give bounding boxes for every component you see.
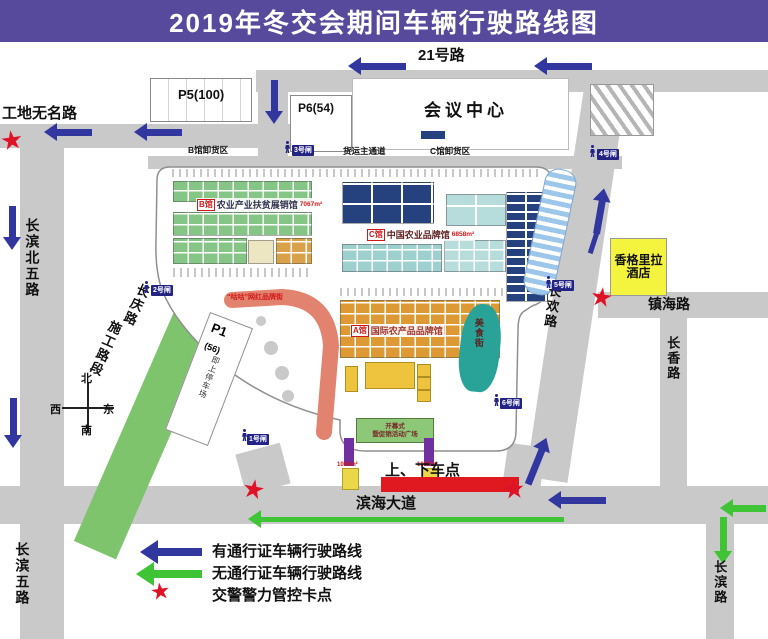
gate-2: 2号闸: [151, 285, 173, 296]
hallC-area: 6858m²: [452, 231, 474, 238]
hotel-shangrila: 香格里拉 酒店: [610, 238, 667, 296]
hatched-building: [590, 84, 654, 136]
hallC-navy-blocks: [342, 182, 434, 224]
parking-p1-capacity: (56): [203, 341, 222, 356]
changxiang-label: 长香路: [665, 336, 679, 381]
yellow-block-r1: [417, 364, 431, 377]
page-title: 2019年冬交会期间车辆行驶路线图: [169, 3, 599, 40]
checkpoint-star-zhenhai: [588, 283, 615, 312]
booth-strip-mid-left: [173, 268, 310, 277]
gongdi-label: 工地无名路: [2, 106, 77, 123]
dropoff-label: 上、下车点: [385, 463, 460, 480]
pedestrian-icon-gate6: [493, 394, 500, 406]
route-arrow-21-east: [534, 56, 592, 76]
hallC-teal-row2: [342, 244, 442, 272]
checkpoint-star-binhai-west: [240, 474, 267, 504]
road21-label: 21号路: [418, 48, 465, 65]
gate-5: 5号闸: [552, 280, 574, 291]
compass: 北 西 东 南: [56, 368, 118, 434]
route-arrow-binhai-blue: [548, 490, 606, 510]
hallA-label: A馆 国际农产品品牌馆: [350, 324, 444, 337]
temp-yellow-left: [342, 468, 359, 490]
route-arrow-green-east: [720, 498, 766, 518]
opening-line2: 暨促销活动广场: [372, 431, 418, 439]
yellow-block-left: [345, 366, 358, 392]
conference-center-label: 会议中心: [424, 102, 508, 121]
legend-police-label: 交警警力管控卡点: [212, 588, 332, 605]
legend-pass-label: 有通行证车辆行驶路线: [212, 544, 362, 561]
gate-6: 6号闸: [500, 398, 522, 409]
hallB-tan-block: [276, 238, 312, 264]
hallB-name: 农业产业扶贫展销馆: [217, 198, 298, 211]
title-bar: 2019年冬交会期间车辆行驶路线图: [0, 0, 768, 42]
changbin-n5-label: 长滨北五路: [24, 218, 39, 298]
pedestrian-icon-gate3: [284, 141, 291, 153]
pedestrian-icon-gate5: [545, 276, 552, 288]
booth-strip-top: [172, 169, 538, 177]
hallB-blocks-row3: [173, 238, 247, 264]
hallA-tag: A馆: [351, 325, 369, 337]
parking-p1-label: P1: [209, 320, 229, 340]
hallC-label: C馆 中国农业品牌馆 6858m²: [366, 228, 475, 241]
changbin-label: 长滨路: [712, 560, 726, 605]
conference-navy-chip: [421, 131, 445, 139]
temp-area-left: 1000m²: [337, 462, 358, 468]
hallC-tag: C馆: [367, 229, 385, 241]
compass-east: 东: [103, 401, 114, 417]
route-arrow-cbn5-top: [2, 206, 22, 250]
yellow-block-r3: [417, 390, 431, 402]
route-arrow-cbn5-bottom: [3, 398, 23, 448]
hallB-label: B馆 农业产业扶贫展销馆 7067m²: [196, 198, 323, 211]
zhenhai-label: 镇海路: [648, 297, 690, 312]
hallC-teal-large: [446, 194, 506, 226]
compass-west: 西: [50, 401, 61, 417]
legend-blue-arrow: [140, 540, 202, 564]
parking-p1-note: 即上停车场: [196, 354, 222, 400]
route-map: 2019年冬交会期间车辆行驶路线图 P5(100) P6(54) 会议中心 香格…: [0, 0, 768, 639]
compass-north: 北: [81, 370, 92, 386]
c-unload-label: C馆卸货区: [430, 147, 470, 156]
hotel-name-line2: 酒店: [626, 267, 650, 280]
pedestrian-icon-gate4: [589, 145, 596, 157]
parking-p6-label: P6(54): [298, 102, 334, 115]
checkpoint-star-gongdi: [0, 126, 25, 155]
gate-4: 4号闸: [597, 149, 619, 160]
parking-p5-label: P5(100): [178, 88, 224, 102]
legend-star: [148, 579, 172, 605]
food-street-label: 美食街: [473, 318, 483, 348]
route-arrow-21-west: [348, 56, 406, 76]
b-unload-label: B馆卸货区: [188, 146, 228, 155]
route-arrow-gongdi-2: [134, 122, 182, 142]
route-arrow-gongdi-1: [44, 122, 92, 142]
gate-3: 3号闸: [292, 145, 314, 156]
route-arrow-stub-down: [264, 80, 284, 124]
gate-1: 1号闸: [247, 434, 269, 445]
opening-line1: 开幕式: [385, 423, 405, 431]
binhai-label: 滨海大道: [356, 496, 416, 513]
hallC-name: 中国农业品牌馆: [387, 228, 450, 241]
hallB-blocks-row2: [173, 212, 312, 236]
changbin5-label: 长滨五路: [14, 542, 29, 606]
hallB-tag: B馆: [197, 199, 215, 211]
hallB-area: 7067m²: [300, 201, 322, 208]
hallA-name: 国际农产品品牌馆: [371, 324, 443, 337]
booth-strip-mid: [340, 288, 505, 296]
freight-label: 货运主通道: [343, 147, 386, 156]
compass-south: 南: [81, 422, 92, 438]
hallB-pale-block: [248, 240, 274, 264]
yellow-block-r2: [417, 377, 431, 390]
checkpoint-star-binhai-east: [501, 475, 526, 503]
pedestrian-icon-gate2: [143, 281, 150, 293]
route-arrow-changbin-down: [713, 517, 733, 564]
legend-nopass-label: 无通行证车辆行驶路线: [212, 566, 362, 583]
stage-yellow-block: [365, 362, 415, 389]
hallC-teal-right: [444, 240, 506, 272]
opening-plaza: 开幕式 暨促销活动广场: [356, 418, 434, 443]
brand-street-label: “咕咕”网红品牌街: [227, 292, 283, 302]
